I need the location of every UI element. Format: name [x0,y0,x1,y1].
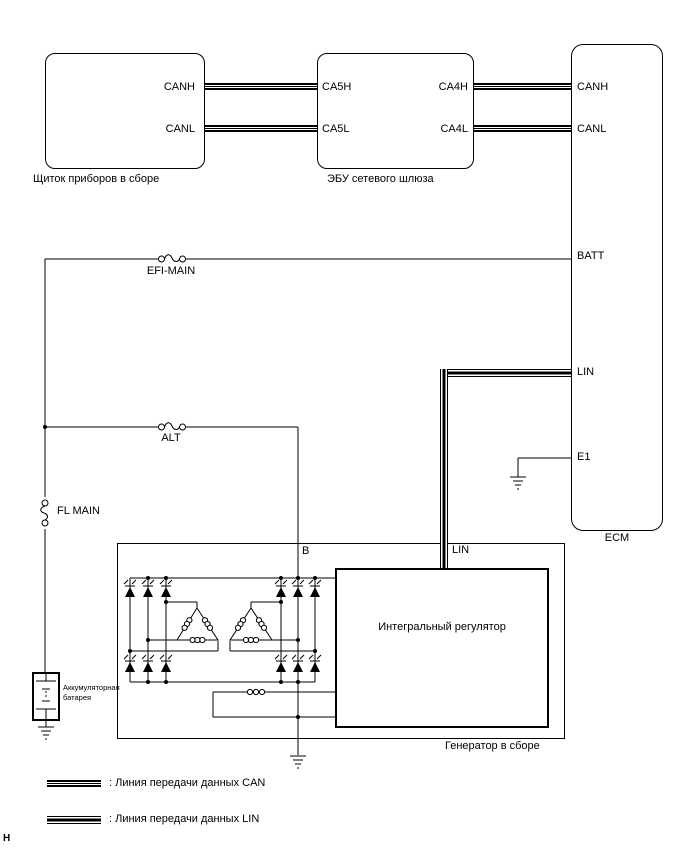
pin-ca4l: CA4L [418,123,468,136]
fl-main-fuse-label: FL MAIN [57,505,100,518]
labels-layer: Щиток приборов в сборе ЭБУ сетевого шлюз… [0,0,688,852]
can-line [474,83,571,90]
pin-b-generator: B [302,545,309,558]
battery-label-line2: батарея [63,693,91,702]
legend-lin-label: : Линия передачи данных LIN [109,813,259,826]
lin-line [440,369,448,568]
pin-canh-ecm: CANH [577,81,608,94]
pin-ca5l: CA5L [322,123,350,136]
pin-lin-generator: LIN [452,544,469,557]
pin-ca4h: CA4H [418,81,468,94]
pin-canl-ecm: CANL [577,123,606,136]
pin-canl-instrument: CANL [145,123,195,136]
alt-fuse-label: ALT [126,432,216,445]
wiring-diagram: Щиток приборов в сборе ЭБУ сетевого шлюз… [0,0,688,852]
legend-can-label: : Линия передачи данных CAN [109,777,265,790]
pin-batt: BATT [577,250,604,263]
pin-canh-instrument: CANH [145,81,195,94]
can-line [474,125,571,132]
can-line [205,125,317,132]
battery-label-line1: Аккумуляторная [63,683,120,692]
generator-label: Генератор в сборе [445,740,540,753]
regulator-label: Интегральный регулятор [335,621,549,634]
lin-line [440,369,571,377]
efi-main-fuse-label: EFI-MAIN [126,265,216,278]
page-corner-mark: H [3,833,10,844]
gateway-ecu-label: ЭБУ сетевого шлюза [327,173,434,186]
pin-ca5h: CA5H [322,81,351,94]
can-line [205,83,317,90]
pin-lin-ecm: LIN [577,366,594,379]
pin-e1: E1 [577,451,590,464]
ecm-label: ECM [571,532,663,545]
instrument-panel-label: Щиток приборов в сборе [33,173,159,186]
legend-can-sample [47,780,101,787]
legend-lin-sample [47,816,101,824]
